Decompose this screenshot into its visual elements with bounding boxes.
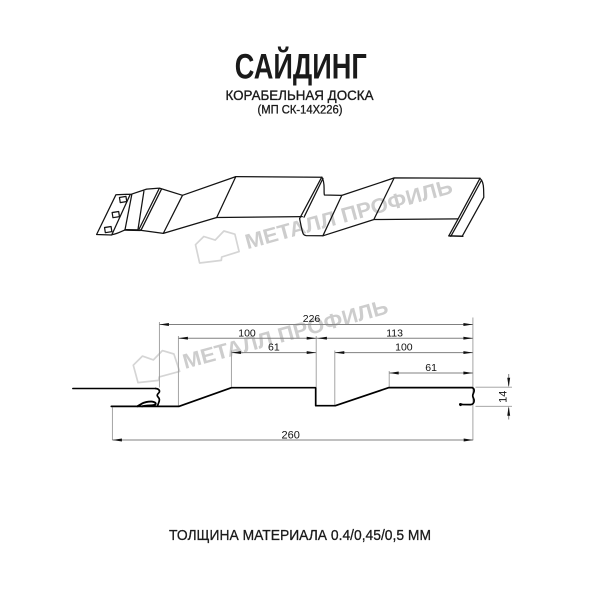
svg-text:226: 226 bbox=[303, 313, 321, 325]
svg-text:100: 100 bbox=[395, 342, 413, 354]
svg-text:ТОЛЩИНА МАТЕРИАЛА 0.4/0,45/0,5: ТОЛЩИНА МАТЕРИАЛА 0.4/0,45/0,5 ММ bbox=[169, 527, 431, 544]
svg-text:14: 14 bbox=[498, 391, 510, 403]
svg-text:САЙДИНГ: САЙДИНГ bbox=[235, 47, 367, 87]
svg-text:100: 100 bbox=[238, 327, 256, 339]
svg-text:260: 260 bbox=[282, 429, 300, 441]
svg-text:61: 61 bbox=[425, 362, 437, 374]
svg-text:113: 113 bbox=[386, 327, 403, 339]
svg-text:(МП СК-14Х226): (МП СК-14Х226) bbox=[258, 105, 343, 117]
svg-text:61: 61 bbox=[268, 342, 280, 354]
svg-text:КОРАБЕЛЬНАЯ ДОСКА: КОРАБЕЛЬНАЯ ДОСКА bbox=[226, 87, 375, 103]
